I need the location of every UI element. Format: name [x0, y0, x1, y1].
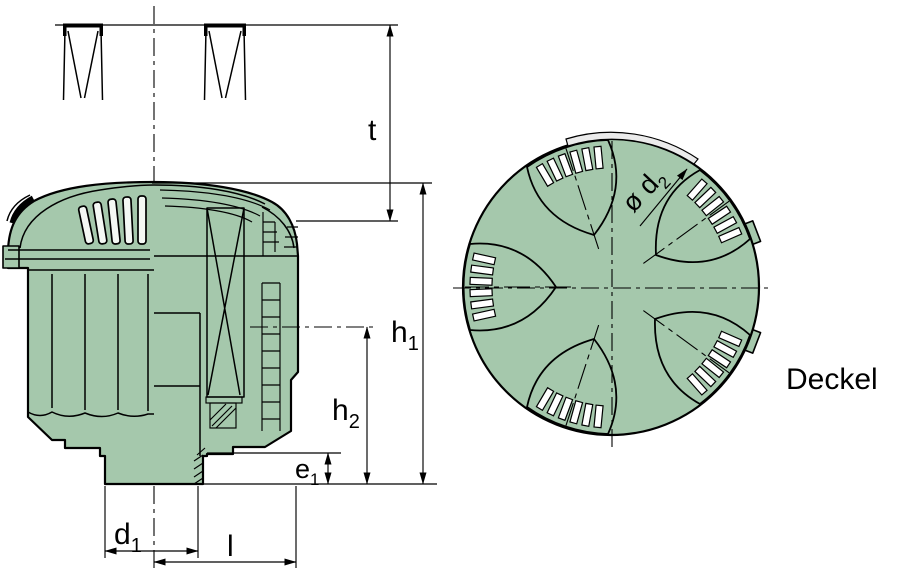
dim-label-l: l: [227, 530, 234, 563]
dimension-l: l: [154, 486, 296, 568]
side-section-view: t h1 h2 e1 d1 l: [3, 6, 437, 568]
dim-label-h1: h1: [391, 316, 419, 355]
mounting-clip-left: [63, 24, 103, 101]
cover-top-view: ø d2 Deckel: [453, 132, 878, 449]
dim-label-t: t: [368, 114, 377, 147]
dimension-d1: d1: [105, 486, 198, 558]
mounting-clip-right: [204, 24, 246, 101]
technical-drawing-canvas: t h1 h2 e1 d1 l: [0, 0, 900, 573]
louver-slot: [138, 196, 146, 244]
clip-top-bar: [204, 24, 246, 28]
top-view-caption: Deckel: [786, 363, 878, 396]
dim-label-h2: h2: [332, 394, 360, 433]
dimension-t: t: [296, 25, 398, 221]
louver-slot: [123, 197, 133, 244]
clip-top-bar: [63, 24, 103, 28]
clip-spring-lines: [205, 29, 246, 100]
clip-spring-lines: [64, 29, 103, 100]
